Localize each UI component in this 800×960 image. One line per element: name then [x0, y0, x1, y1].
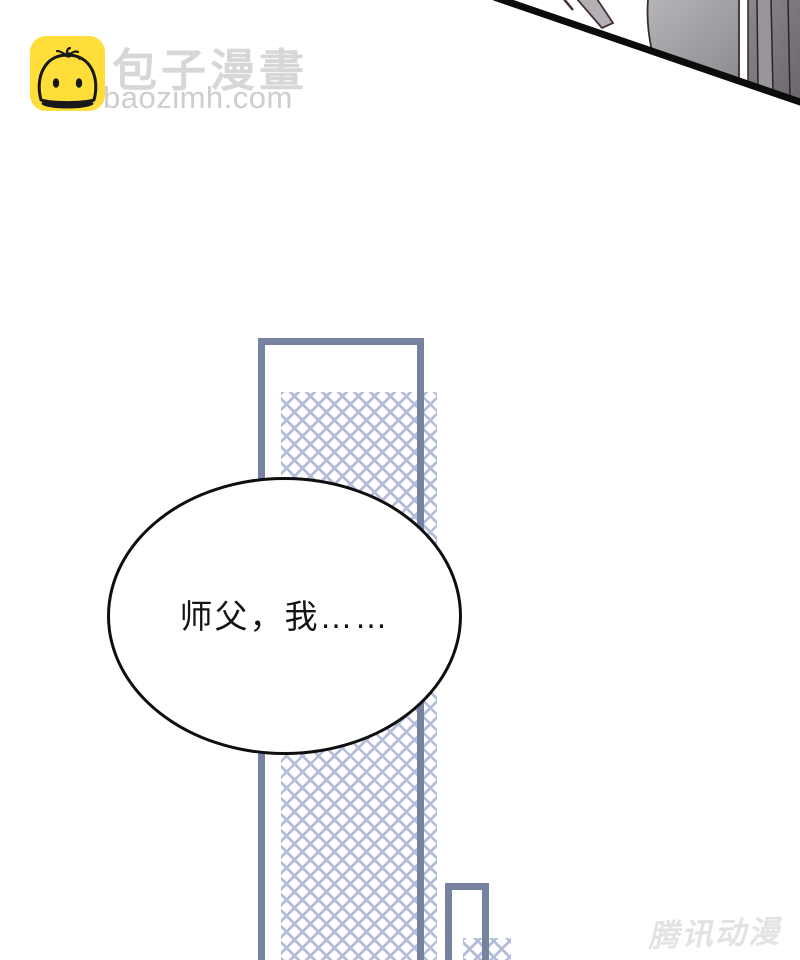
speech-bubble-text: 师父，我……: [180, 590, 390, 638]
site-logo: 包子漫畫 baozimh.com: [30, 36, 320, 116]
small-panel-frame: [445, 883, 489, 960]
character-clothing-hair-fragment: [480, 0, 800, 112]
comic-page: { "page": { "background_color": "#ffffff…: [0, 0, 800, 960]
site-logo-domain: baozimh.com: [103, 80, 293, 116]
speech-bubble: 师父，我……: [107, 477, 462, 755]
tencent-comics-watermark: 腾讯动漫: [647, 905, 800, 954]
baozi-bun-icon: [30, 36, 105, 111]
